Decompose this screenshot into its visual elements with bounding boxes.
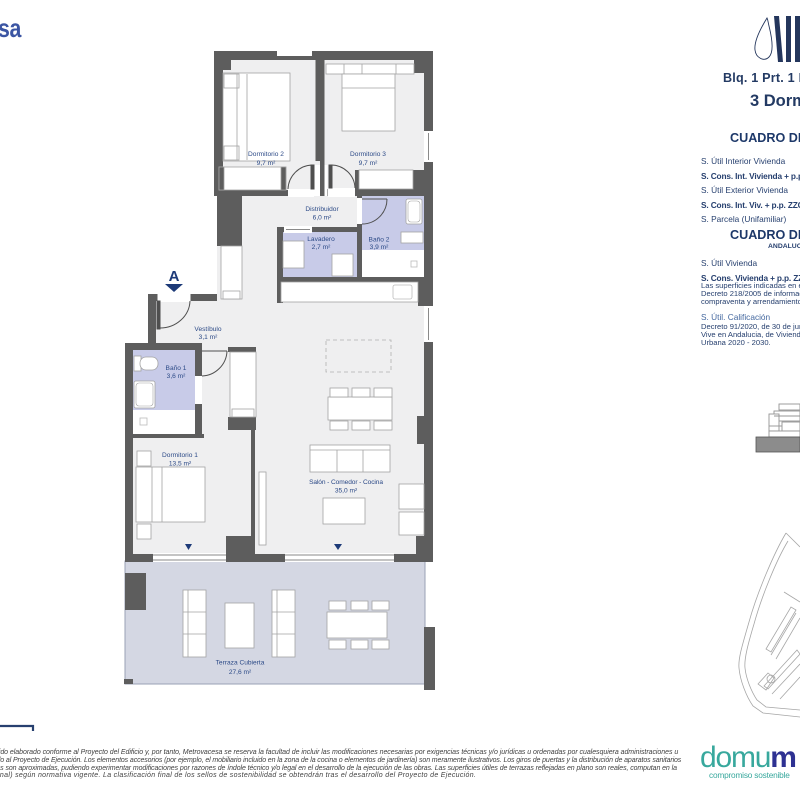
svg-text:Dormitorio 2: Dormitorio 2	[248, 151, 284, 158]
svg-text:Baño 1: Baño 1	[166, 365, 187, 372]
svg-text:Lavadero: Lavadero	[307, 236, 335, 243]
svg-text:Baño 2: Baño 2	[369, 237, 390, 244]
svg-text:Salón - Comedor - Cocina: Salón - Comedor - Cocina	[309, 479, 383, 486]
svg-text:35,0 m²: 35,0 m²	[335, 488, 358, 495]
svg-text:3,1 m²: 3,1 m²	[199, 334, 218, 341]
svg-text:Distribuidor: Distribuidor	[305, 206, 339, 213]
svg-text:3,6 m²: 3,6 m²	[167, 373, 186, 380]
svg-text:9,7 m²: 9,7 m²	[359, 160, 378, 167]
svg-text:2,7 m²: 2,7 m²	[312, 244, 331, 251]
svg-text:Dormitorio 1: Dormitorio 1	[162, 452, 198, 459]
svg-text:9,7 m²: 9,7 m²	[257, 160, 276, 167]
svg-text:Dormitorio 3: Dormitorio 3	[350, 151, 386, 158]
svg-text:6,0 m²: 6,0 m²	[313, 215, 332, 222]
svg-text:3,9 m²: 3,9 m²	[370, 244, 389, 251]
svg-text:A: A	[169, 268, 180, 285]
svg-text:Vestíbulo: Vestíbulo	[194, 326, 221, 333]
svg-text:Terraza Cubierta: Terraza Cubierta	[216, 660, 265, 667]
svg-text:27,6 m²: 27,6 m²	[229, 669, 252, 676]
svg-text:13,5 m²: 13,5 m²	[169, 461, 192, 468]
